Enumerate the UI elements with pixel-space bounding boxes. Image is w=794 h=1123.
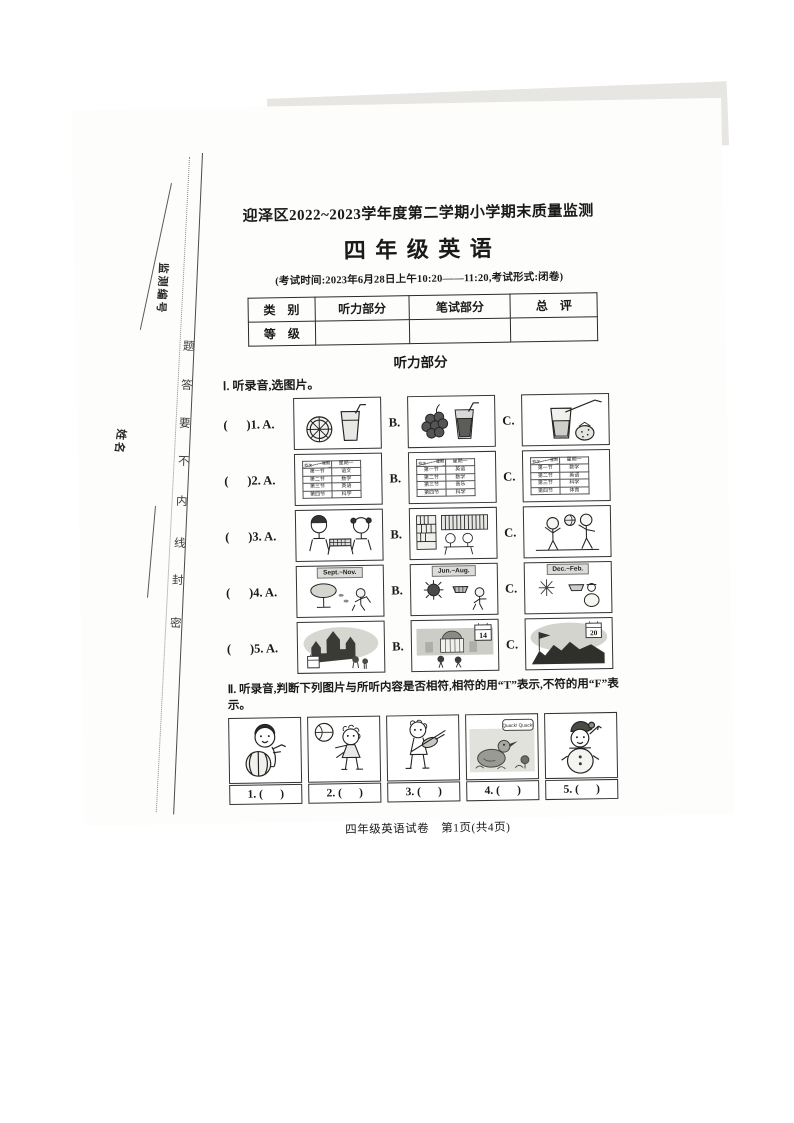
q3-option-b-box	[409, 507, 498, 560]
part2-instruction: Ⅱ. 听录音,判断下列图片与所听内容是否相符,相符的用“T”表示,不符的用“F”…	[228, 675, 624, 713]
score-table-grade-label: 等 级	[248, 321, 315, 346]
part2-image-4: Quack! Quack!	[465, 713, 539, 780]
q1-option-b-box	[407, 395, 496, 448]
q4-option-b-label: B.	[384, 583, 410, 598]
score-table-total-header: 总 评	[510, 293, 597, 318]
timetable-cell: 第四节	[417, 489, 446, 497]
page-footer: 四年级英语试卷 第1页(共4页)	[230, 817, 626, 839]
timetable-cell: 第四节	[303, 491, 332, 499]
seal-char: 不	[178, 453, 190, 469]
question-row-1: ( )1. A. B.	[223, 393, 620, 451]
question-1-label: ( )1. A.	[223, 416, 293, 432]
timetable-corner: 星期节次	[303, 460, 332, 468]
orange-juice-image	[295, 400, 380, 447]
summer-scene-image	[412, 576, 497, 613]
q3-option-b-label: B.	[383, 527, 409, 542]
corner-week: 星期	[550, 457, 558, 461]
timetable-corner: 星期节次	[531, 457, 560, 465]
timetable-cell: 第四节	[531, 487, 560, 495]
corner-period: 节次	[532, 460, 540, 464]
part2-answer-3: 3. ( )	[387, 781, 460, 802]
dome-building-calendar-14-image: 14	[413, 622, 498, 669]
part2-item-2: 2. ( )	[307, 716, 381, 804]
autumn-scene-image	[298, 578, 383, 615]
score-cell-listening	[315, 320, 410, 345]
question-row-3: ( )3. A. B.	[225, 505, 622, 563]
seal-char: 内	[176, 493, 188, 509]
seal-char: 要	[179, 415, 191, 431]
q4-option-a-box: Sept.~Nov.	[296, 565, 385, 618]
grape-juice-image	[409, 398, 494, 445]
part2-image-3	[386, 714, 460, 781]
question-4-label: ( )4. A.	[226, 584, 296, 600]
timetable-cell: 科学	[446, 489, 475, 497]
season-label-summer: Jun.~Aug.	[432, 565, 476, 577]
corner-week: 星期	[436, 459, 444, 463]
question-3-label: ( )3. A.	[225, 528, 295, 544]
calendar-date-14: 14	[479, 631, 487, 640]
score-cell-total	[511, 317, 598, 342]
part2-item-4: Quack! Quack! 4. ( )	[465, 713, 539, 801]
timetable-corner: 星期节次	[417, 459, 446, 467]
timetable-a: 星期节次 星期一 第一节语文 第二节数学 第三节英语 第四节科学	[302, 459, 362, 499]
seal-char: 线	[174, 535, 186, 551]
listening-section-title: 听力部分	[222, 348, 618, 374]
table-row: 等 级	[248, 317, 597, 346]
q3-option-c-box	[523, 505, 612, 558]
score-table: 类 别 听力部分 笔试部分 总 评 等 级	[247, 292, 598, 346]
question-2-label: ( )2. A.	[224, 472, 294, 488]
monitor-number-label: 监测编号	[153, 262, 172, 315]
timetable-cell: 科学	[332, 490, 361, 498]
part2-item-5: 5. ( )	[544, 712, 618, 800]
q1-option-c-label: C.	[495, 413, 521, 428]
part2-image-5	[544, 712, 618, 779]
boy-violin-image	[388, 717, 458, 779]
question-row-4: ( )4. A. Sept.~Nov. B. Jun.~Aug.	[226, 561, 623, 619]
girl-volleyball-image	[309, 718, 379, 780]
q1-option-a-box	[293, 397, 382, 450]
exam-page-content: 迎泽区2022~2023学年度第二学期小学期末质量监测 四 年 级 英 语 (考…	[220, 199, 626, 839]
snowman-santa-image	[546, 714, 616, 776]
seal-char: 题	[183, 338, 195, 354]
question-row-2: ( )2. A. 星期节次 星期一 第一节语文 第二节数学 第三节英语 第四节科…	[224, 449, 621, 507]
question-row-5: ( )5. A. B.	[227, 617, 624, 675]
part2-answer-5: 5. ( )	[545, 779, 618, 800]
q5-option-b-label: B.	[385, 639, 411, 654]
part1-instruction: Ⅰ. 听录音,选图片。	[223, 371, 619, 394]
q5-option-c-box: 20	[525, 617, 614, 670]
score-table-written-header: 笔试部分	[409, 294, 510, 320]
q3-option-a-box	[295, 509, 384, 562]
name-label: 姓名	[111, 428, 130, 456]
season-label-winter: Dec.~Feb.	[546, 563, 589, 575]
winter-scene-image	[526, 574, 611, 611]
part2-answer-2: 2. ( )	[308, 783, 381, 804]
timetable-cell: 体育	[560, 487, 589, 495]
city-parade-calendar-20-image: 20	[527, 620, 612, 667]
q5-option-c-label: C.	[499, 637, 525, 652]
part2-image-2	[307, 716, 381, 783]
corner-period: 节次	[418, 462, 426, 466]
part2-picture-row: 1. ( ) 2. ( )	[228, 712, 625, 805]
q2-option-b-label: B.	[382, 471, 408, 486]
part2-answer-1: 1. ( )	[229, 784, 302, 805]
boy-watermelon-image	[230, 719, 300, 781]
library-reading-image	[411, 510, 496, 557]
q2-option-c-box: 星期节次 星期一 第一节数学 第二节英语 第三节科学 第四节体育	[522, 449, 611, 502]
duck-speech-text: Quack! Quack!	[502, 722, 533, 728]
palace-calendar-image	[299, 624, 384, 671]
part2-item-3: 3. ( )	[386, 714, 460, 802]
exam-info: (考试时间:2023年6月28日上午10:20——11:20,考试形式:闭卷)	[221, 268, 617, 289]
subject-title: 四 年 级 英 语	[220, 229, 616, 267]
q2-option-c-label: C.	[496, 469, 522, 484]
part2-image-1	[228, 717, 302, 784]
part2-answer-4: 4. ( )	[466, 780, 539, 801]
timetable-b: 星期节次 星期一 第一节英语 第二节数学 第三节音乐 第四节科学	[416, 458, 476, 498]
timetable-c: 星期节次 星期一 第一节数学 第二节英语 第三节科学 第四节体育	[530, 456, 590, 496]
kids-playing-chess-image	[297, 512, 382, 559]
q3-option-c-label: C.	[497, 525, 523, 540]
q4-option-b-box: Jun.~Aug.	[410, 563, 499, 616]
q1-option-c-box	[521, 393, 610, 446]
question-5-label: ( )5. A.	[227, 640, 297, 656]
calendar-date-20: 20	[590, 629, 598, 637]
corner-period: 节次	[304, 464, 312, 468]
corner-week: 星期	[322, 461, 330, 465]
q5-option-a-box	[297, 621, 386, 674]
strawberry-juice-image	[523, 396, 608, 443]
quacking-duck-image: Quack! Quack!	[467, 716, 537, 778]
seal-char: 答	[181, 377, 193, 393]
score-table-listening-header: 听力部分	[315, 296, 410, 321]
q5-option-b-box: 14	[411, 619, 500, 672]
seal-char: 密	[170, 615, 182, 631]
q1-option-b-label: B.	[381, 415, 407, 430]
kids-playing-ball-image	[525, 508, 610, 555]
season-label-autumn: Sept.~Nov.	[317, 567, 362, 579]
q2-option-a-box: 星期节次 星期一 第一节语文 第二节数学 第三节英语 第四节科学	[294, 453, 383, 506]
score-table-category-header: 类 别	[248, 297, 315, 322]
q2-option-b-box: 星期节次 星期一 第一节英语 第二节数学 第三节音乐 第四节科学	[408, 451, 497, 504]
part2-item-1: 1. ( )	[228, 717, 302, 805]
q4-option-c-box: Dec.~Feb.	[524, 561, 613, 614]
seal-char: 封	[172, 572, 184, 588]
q4-option-c-label: C.	[498, 581, 524, 596]
score-cell-written	[410, 318, 511, 344]
